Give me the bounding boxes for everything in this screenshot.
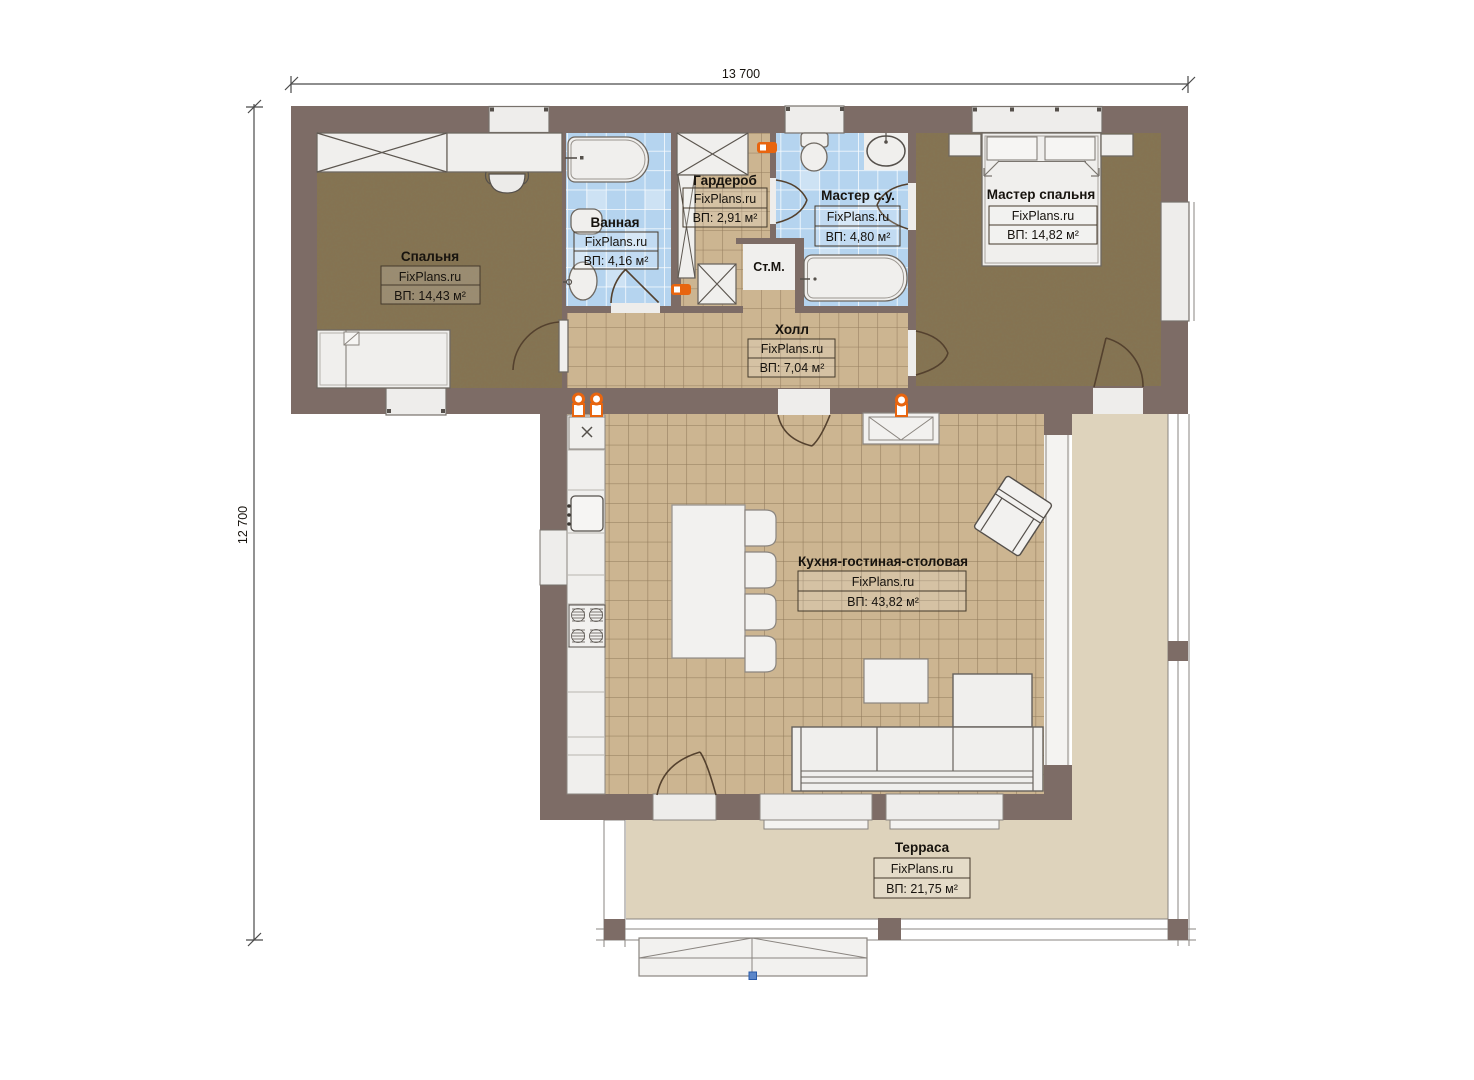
svg-text:FixPlans.ru: FixPlans.ru <box>761 342 824 356</box>
svg-text:ВП: 21,75 м²: ВП: 21,75 м² <box>886 882 958 896</box>
svg-text:ВП: 4,80 м²: ВП: 4,80 м² <box>826 230 891 244</box>
svg-text:ВП: 14,43 м²: ВП: 14,43 м² <box>394 289 466 303</box>
svg-text:ВП: 43,82 м²: ВП: 43,82 м² <box>847 595 919 609</box>
svg-text:Мастер спальня: Мастер спальня <box>987 187 1096 202</box>
svg-text:FixPlans.ru: FixPlans.ru <box>585 235 648 249</box>
svg-text:12 700: 12 700 <box>236 506 250 544</box>
svg-text:FixPlans.ru: FixPlans.ru <box>1012 209 1075 223</box>
svg-text:Терраса: Терраса <box>895 840 950 855</box>
svg-text:FixPlans.ru: FixPlans.ru <box>827 210 890 224</box>
svg-text:FixPlans.ru: FixPlans.ru <box>694 192 757 206</box>
svg-text:Мастер с.у.: Мастер с.у. <box>821 188 895 203</box>
svg-text:FixPlans.ru: FixPlans.ru <box>852 575 915 589</box>
svg-text:Холл: Холл <box>775 322 809 337</box>
svg-text:ВП: 14,82 м²: ВП: 14,82 м² <box>1007 228 1079 242</box>
svg-text:13 700: 13 700 <box>722 67 760 81</box>
svg-text:Кухня-гостиная-столовая: Кухня-гостиная-столовая <box>798 554 968 569</box>
svg-text:ВП: 4,16 м²: ВП: 4,16 м² <box>584 254 649 268</box>
svg-text:ВП: 7,04 м²: ВП: 7,04 м² <box>760 361 825 375</box>
svg-text:Ст.М.: Ст.М. <box>753 260 784 274</box>
svg-text:Гардероб: Гардероб <box>693 173 757 188</box>
svg-text:Ванная: Ванная <box>591 215 640 230</box>
svg-text:FixPlans.ru: FixPlans.ru <box>891 862 954 876</box>
svg-text:Спальня: Спальня <box>401 249 459 264</box>
svg-text:FixPlans.ru: FixPlans.ru <box>399 270 462 284</box>
svg-text:ВП: 2,91 м²: ВП: 2,91 м² <box>693 211 758 225</box>
